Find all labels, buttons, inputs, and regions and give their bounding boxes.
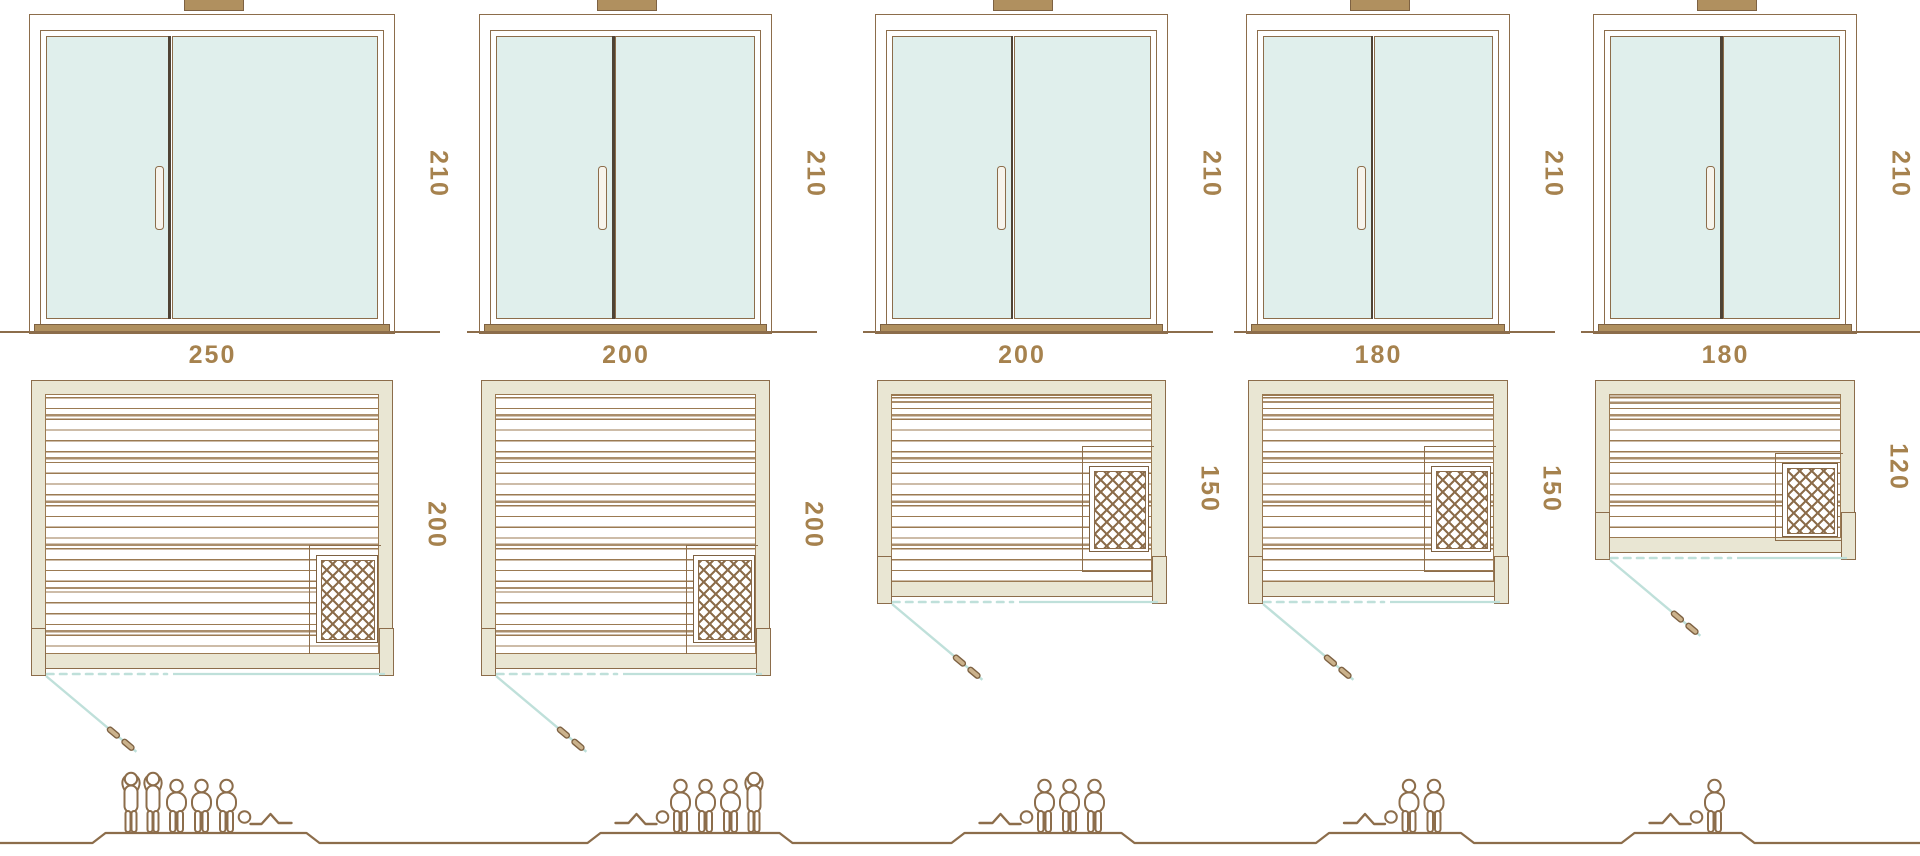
capacity-group (977, 778, 1110, 834)
capacity-group (1647, 778, 1730, 834)
heater-grid (321, 560, 375, 640)
wall-band (1248, 380, 1508, 597)
door-left-pane (1610, 36, 1721, 319)
person-slot (1700, 778, 1730, 834)
door-right-pane (615, 36, 755, 319)
heater-icon (1782, 463, 1838, 537)
sauna-column: 210 180 150 (1246, 0, 1511, 856)
person-slot (1647, 804, 1705, 834)
door-handle-icon (1706, 166, 1715, 230)
door-divider (1011, 36, 1013, 319)
door-divider (168, 36, 170, 319)
person-slot (741, 770, 768, 834)
front-elevation (1593, 14, 1857, 334)
front-elevation (875, 14, 1168, 334)
door-handle-icon (155, 166, 164, 230)
wall-band (481, 380, 770, 669)
width-label: 250 (189, 341, 237, 370)
heater-grid (1436, 471, 1488, 549)
front-elevation (29, 14, 395, 334)
floor-plan (877, 380, 1167, 728)
door-handle-icon (598, 166, 607, 230)
double-door (1604, 30, 1846, 325)
door-height-label: 210 (1539, 150, 1568, 198)
floor-plan (31, 380, 394, 800)
floor-line (1581, 331, 1920, 333)
plan-door-swing (1248, 596, 1529, 706)
double-door (40, 30, 384, 325)
width-label: 200 (602, 341, 650, 370)
floor-line (0, 331, 440, 333)
door-divider (612, 36, 614, 319)
capacity-group (1341, 778, 1449, 834)
depth-label: 200 (422, 501, 451, 549)
ground-profile-line (0, 833, 1920, 843)
floor-plan (1595, 380, 1856, 684)
person-sitting-icon (1419, 778, 1449, 834)
heater-icon (1089, 466, 1149, 552)
capacity-group (613, 770, 768, 834)
sauna-column: 210 250 200 (29, 0, 396, 856)
door-height-label: 210 (1197, 150, 1226, 198)
floor-line (863, 331, 1213, 333)
heater-grid (1094, 471, 1146, 549)
roof-vent-icon (1697, 0, 1757, 11)
heater-icon (1431, 466, 1491, 552)
wall-band (877, 380, 1166, 597)
person-lying-icon (613, 804, 671, 834)
sauna-column: 210 200 200 (479, 0, 773, 856)
width-label: 180 (1702, 341, 1750, 370)
door-divider (1720, 36, 1722, 319)
door-left-pane (892, 36, 1012, 319)
door-right-pane (1374, 36, 1493, 319)
person-slot (977, 804, 1035, 834)
door-left-pane (1263, 36, 1372, 319)
person-sitting-icon (1700, 778, 1730, 834)
person-lying-icon (977, 804, 1035, 834)
person-lying-icon (1647, 804, 1705, 834)
person-lying-icon (237, 804, 295, 834)
depth-label: 150 (1195, 465, 1224, 513)
door-handle-icon (997, 166, 1006, 230)
heater-icon (693, 555, 755, 643)
door-right-pane (1014, 36, 1151, 319)
door-divider (1371, 36, 1373, 319)
plan-door-swing (1595, 552, 1876, 662)
plan-door-swing (877, 596, 1187, 706)
width-label: 180 (1355, 341, 1403, 370)
double-door (1257, 30, 1499, 325)
depth-label: 120 (1884, 443, 1913, 491)
person-lying-icon (1341, 804, 1399, 834)
roof-vent-icon (184, 0, 244, 11)
heater-icon (316, 555, 378, 643)
floor-line (1234, 331, 1555, 333)
sauna-column: 210 200 150 (875, 0, 1169, 856)
person-slot (237, 804, 295, 834)
sauna-column: 210 180 120 (1593, 0, 1858, 856)
person-slot (1419, 778, 1449, 834)
door-handle-icon (1357, 166, 1366, 230)
double-door (886, 30, 1157, 325)
door-right-pane (172, 36, 378, 319)
capacity-group (118, 770, 295, 834)
front-elevation (1246, 14, 1510, 334)
door-height-label: 210 (1886, 150, 1915, 198)
person-slot (613, 804, 671, 834)
door-height-label: 210 (424, 150, 453, 198)
depth-label: 200 (799, 501, 828, 549)
roof-vent-icon (993, 0, 1053, 11)
front-elevation (479, 14, 772, 334)
door-right-pane (1723, 36, 1840, 319)
sauna-comparison-diagram: 210 250 200 (0, 0, 1920, 856)
floor-plan (481, 380, 771, 800)
person-slot (1080, 778, 1110, 834)
door-left-pane (46, 36, 170, 319)
door-height-label: 210 (801, 150, 830, 198)
person-standing-icon (741, 770, 768, 834)
door-left-pane (496, 36, 613, 319)
heater-grid (698, 560, 752, 640)
wall-band (1595, 380, 1855, 553)
floor-line (467, 331, 817, 333)
width-label: 200 (998, 341, 1046, 370)
plan-door-swing (31, 668, 414, 778)
roof-vent-icon (597, 0, 657, 11)
plan-door-swing (481, 668, 791, 778)
person-slot (1341, 804, 1399, 834)
person-sitting-icon (1080, 778, 1110, 834)
floor-plan (1248, 380, 1509, 728)
wall-band (31, 380, 393, 669)
depth-label: 150 (1537, 465, 1566, 513)
heater-grid (1787, 468, 1835, 534)
double-door (490, 30, 761, 325)
roof-vent-icon (1350, 0, 1410, 11)
